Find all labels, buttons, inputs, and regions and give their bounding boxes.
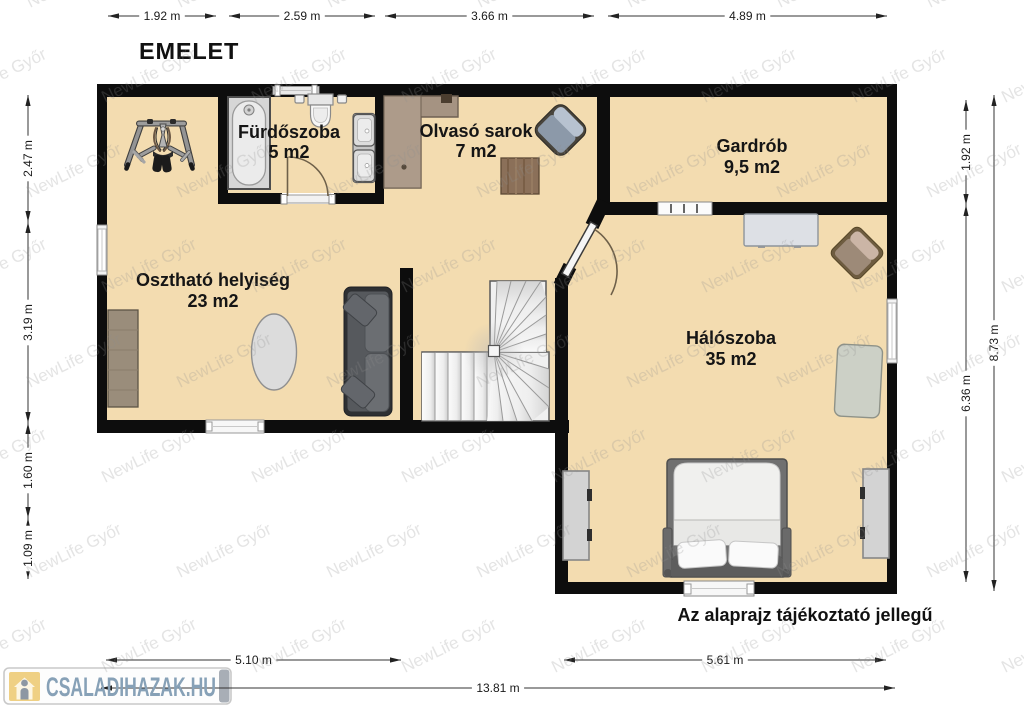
svg-text:Olvasó sarok: Olvasó sarok	[419, 121, 533, 141]
svg-text:7 m2: 7 m2	[455, 141, 496, 161]
svg-text:Fürdőszoba: Fürdőszoba	[238, 122, 341, 142]
svg-text:6.36 m: 6.36 m	[959, 375, 973, 412]
svg-text:13.81 m: 13.81 m	[476, 681, 519, 695]
svg-text:35 m2: 35 m2	[705, 349, 756, 369]
svg-text:23 m2: 23 m2	[187, 291, 238, 311]
svg-text:4.89 m: 4.89 m	[729, 9, 766, 23]
svg-text:1.60 m: 1.60 m	[21, 452, 35, 489]
svg-text:3.66 m: 3.66 m	[471, 9, 508, 23]
svg-text:2.47 m: 2.47 m	[21, 140, 35, 177]
svg-text:Gardrób: Gardrób	[716, 136, 787, 156]
svg-text:1.92 m: 1.92 m	[144, 9, 181, 23]
svg-text:5 m2: 5 m2	[268, 142, 309, 162]
svg-text:Az alaprajz tájékoztató jelleg: Az alaprajz tájékoztató jellegű	[677, 605, 932, 625]
svg-text:3.19 m: 3.19 m	[21, 304, 35, 341]
svg-text:CSALADIHAZAK.HU: CSALADIHAZAK.HU	[46, 672, 216, 702]
svg-text:2.59 m: 2.59 m	[284, 9, 321, 23]
svg-text:9,5 m2: 9,5 m2	[724, 157, 780, 177]
